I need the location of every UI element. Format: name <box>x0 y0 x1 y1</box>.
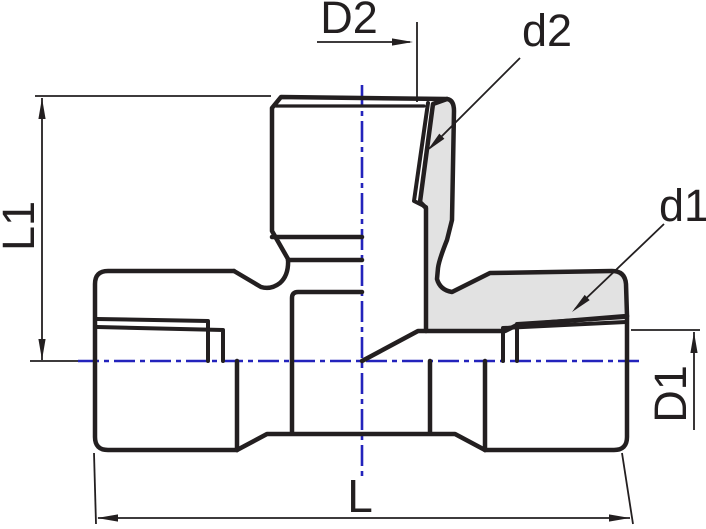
dim-label-L1: L1 <box>0 201 44 251</box>
l-extension-line-left <box>94 453 96 524</box>
dim-label-D1: D1 <box>645 365 696 423</box>
l-extension-line-right <box>622 453 633 524</box>
left-thread-root-line <box>97 327 223 361</box>
l-arrowhead-right <box>609 514 630 521</box>
drawing-svg: D2 d2 d1 L1 D1 L <box>0 0 706 529</box>
right-thread-root-line <box>503 322 626 361</box>
dim-label-d2: d2 <box>522 5 572 56</box>
l1-arrowhead-top <box>38 98 45 119</box>
d2-arrowhead <box>392 38 413 45</box>
tee-fitting-drawing: D2 d2 d1 L1 D1 L <box>0 0 706 529</box>
l1-arrowhead-bottom <box>38 339 45 360</box>
dim-label-D2: D2 <box>320 0 378 43</box>
left-thread-crest-line <box>97 319 208 361</box>
section-boundary-line <box>362 331 426 361</box>
right-port-outline <box>485 316 627 450</box>
dim-label-d1: d1 <box>659 180 706 231</box>
dim-label-L: L <box>347 470 373 522</box>
d1-arrowhead <box>690 332 697 353</box>
section-hatch-region <box>420 99 627 331</box>
l-arrowhead-left <box>97 514 118 521</box>
